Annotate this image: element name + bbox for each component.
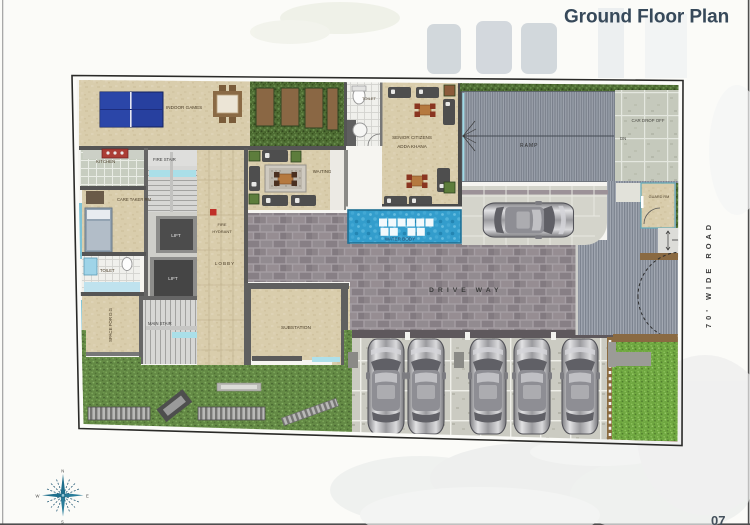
svg-text:TOILET: TOILET [100,268,115,273]
svg-text:Ground Floor Plan: Ground Floor Plan [564,7,729,28]
svg-text:SENIOR CITIZENS: SENIOR CITIZENS [392,135,432,140]
svg-text:SUBSTATION: SUBSTATION [281,325,311,331]
svg-text:SPACE FOR D.G: SPACE FOR D.G [108,307,113,342]
svg-text:RAMP: RAMP [520,143,538,149]
svg-text:MAIN STAIR: MAIN STAIR [148,321,172,326]
svg-text:LOBBY: LOBBY [215,261,235,266]
svg-text:N: N [61,469,64,474]
svg-text:DN: DN [620,136,626,141]
svg-text:E: E [86,494,89,499]
svg-text:TOILET: TOILET [362,96,376,101]
svg-text:HYDRANT: HYDRANT [212,229,232,234]
svg-text:70' WIDE ROAD: 70' WIDE ROAD [704,221,713,328]
svg-text:KITCHEN: KITCHEN [96,159,115,164]
svg-text:GUARD RM: GUARD RM [649,195,670,199]
svg-text:ADDA KHANA: ADDA KHANA [397,144,428,149]
svg-text:07: 07 [711,513,725,525]
svg-text:CAR DROP OFF: CAR DROP OFF [631,118,664,123]
svg-text:W: W [36,494,40,499]
svg-text:FIRE: FIRE [217,222,226,227]
svg-text:LIFT: LIFT [171,233,181,238]
svg-text:WATER BODY: WATER BODY [385,237,415,242]
svg-text:WAITING: WAITING [313,169,332,174]
svg-text:CARE TAKER RM: CARE TAKER RM [117,197,152,202]
svg-text:INDOOR GAMES: INDOOR GAMES [166,105,202,110]
svg-text:S: S [61,520,64,525]
svg-text:FIRE STAIR: FIRE STAIR [153,157,176,162]
svg-text:LIFT: LIFT [168,276,178,281]
svg-text:DRIVE WAY: DRIVE WAY [429,287,503,294]
